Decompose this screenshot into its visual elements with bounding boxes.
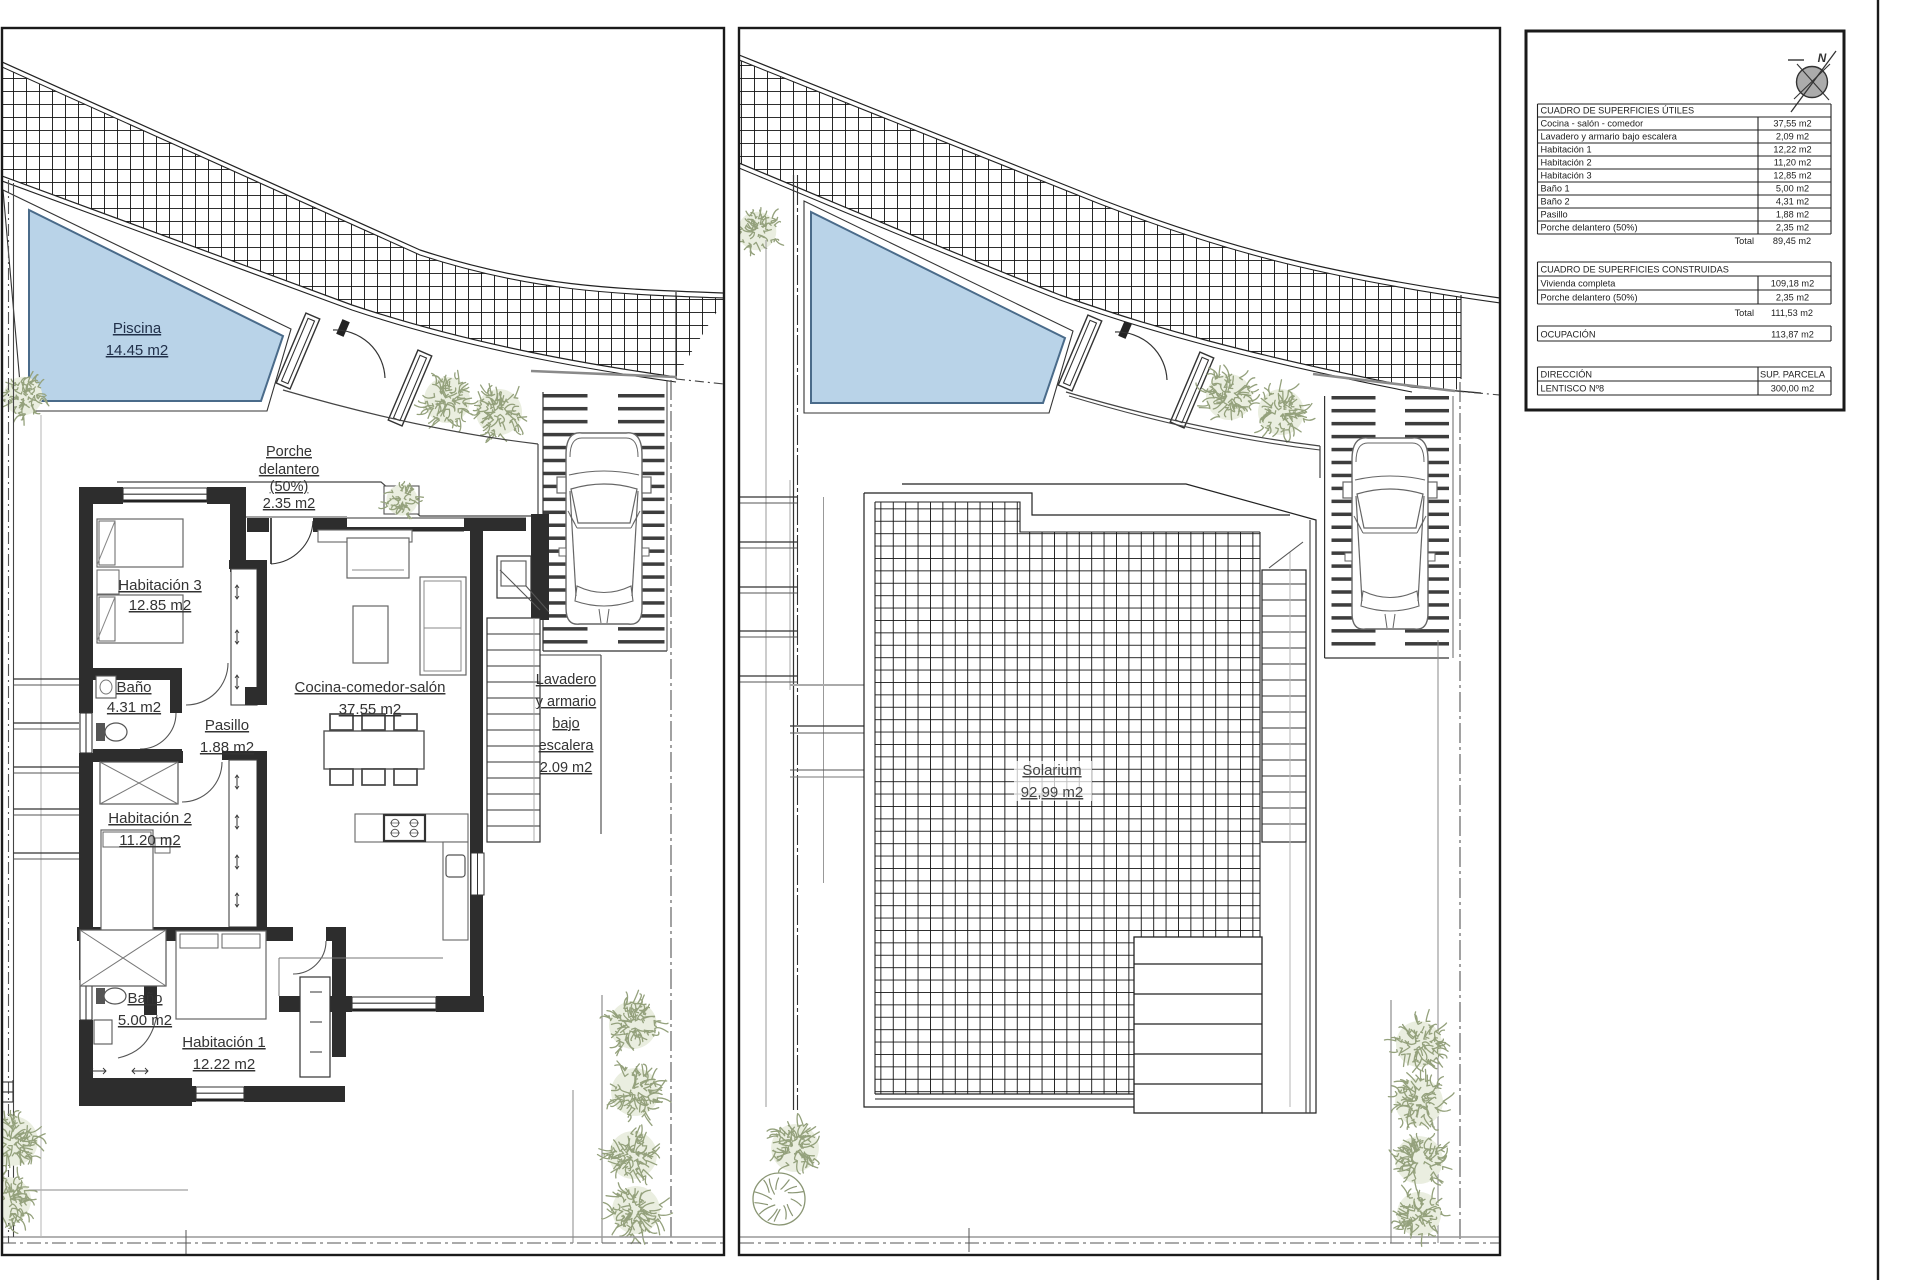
- svg-text:1,88 m2: 1,88 m2: [1776, 210, 1809, 220]
- svg-text:N: N: [1818, 51, 1827, 65]
- svg-text:2.35 m2: 2.35 m2: [263, 496, 315, 512]
- svg-text:37.55 m2: 37.55 m2: [339, 701, 402, 718]
- svg-text:Pasillo: Pasillo: [205, 717, 249, 734]
- svg-text:OCUPACIÓN: OCUPACIÓN: [1541, 330, 1596, 340]
- svg-text:113,87 m2: 113,87 m2: [1771, 330, 1814, 340]
- svg-text:Lavadero: Lavadero: [536, 672, 596, 688]
- svg-text:2.09 m2: 2.09 m2: [540, 760, 592, 776]
- svg-text:y armario: y armario: [536, 694, 596, 710]
- svg-text:12,22 m2: 12,22 m2: [1773, 145, 1811, 155]
- svg-text:300,00 m2: 300,00 m2: [1771, 384, 1814, 394]
- svg-text:DIRECCIÓN: DIRECCIÓN: [1541, 370, 1593, 380]
- svg-text:Pasillo: Pasillo: [1541, 210, 1568, 220]
- svg-text:(50%): (50%): [270, 479, 309, 495]
- svg-text:Baño: Baño: [116, 679, 151, 696]
- svg-text:12,85 m2: 12,85 m2: [1773, 171, 1811, 181]
- svg-text:Baño 2: Baño 2: [1541, 197, 1570, 207]
- svg-text:14.45 m2: 14.45 m2: [106, 342, 169, 359]
- svg-text:11,20 m2: 11,20 m2: [1774, 158, 1812, 168]
- svg-text:Habitación 3: Habitación 3: [118, 577, 201, 594]
- svg-text:2,35 m2: 2,35 m2: [1776, 223, 1809, 233]
- svg-text:Habitación 2: Habitación 2: [108, 810, 191, 827]
- svg-text:92,99 m2: 92,99 m2: [1021, 784, 1084, 801]
- svg-text:1.88 m2: 1.88 m2: [200, 739, 254, 756]
- svg-text:CUADRO DE SUPERFICIES ÚTILES: CUADRO DE SUPERFICIES ÚTILES: [1541, 106, 1695, 116]
- svg-text:2,35 m2: 2,35 m2: [1776, 293, 1809, 303]
- svg-text:Habitación 1: Habitación 1: [182, 1034, 265, 1051]
- svg-text:37,55 m2: 37,55 m2: [1773, 119, 1811, 129]
- svg-text:Habitación 2: Habitación 2: [1541, 158, 1592, 168]
- svg-text:SUP. PARCELA: SUP. PARCELA: [1760, 370, 1826, 380]
- svg-text:5.00 m2: 5.00 m2: [118, 1012, 172, 1029]
- svg-text:4.31 m2: 4.31 m2: [107, 699, 161, 716]
- svg-text:Piscina: Piscina: [113, 320, 162, 337]
- svg-text:11.20 m2: 11.20 m2: [119, 832, 180, 849]
- svg-text:LENTISCO Nº8: LENTISCO Nº8: [1541, 384, 1605, 394]
- svg-text:109,18 m2: 109,18 m2: [1771, 279, 1814, 289]
- svg-text:12.22 m2: 12.22 m2: [193, 1056, 256, 1073]
- svg-text:CUADRO DE SUPERFICIES CONSTRUI: CUADRO DE SUPERFICIES CONSTRUIDAS: [1541, 265, 1729, 275]
- svg-text:Habitación 1: Habitación 1: [1541, 145, 1592, 155]
- svg-text:bajo: bajo: [552, 716, 579, 732]
- svg-text:Habitación 3: Habitación 3: [1541, 171, 1592, 181]
- svg-text:escalera: escalera: [539, 738, 595, 754]
- svg-text:Cocina-comedor-salón: Cocina-comedor-salón: [295, 679, 446, 696]
- svg-text:Porche: Porche: [266, 444, 312, 460]
- svg-text:Cocina - salón - comedor: Cocina - salón - comedor: [1541, 119, 1644, 129]
- svg-text:Porche delantero (50%): Porche delantero (50%): [1541, 223, 1638, 233]
- svg-text:4,31 m2: 4,31 m2: [1776, 197, 1809, 207]
- svg-text:12.85 m2: 12.85 m2: [129, 597, 192, 614]
- svg-text:89,45 m2: 89,45 m2: [1773, 236, 1811, 246]
- svg-text:Solarium: Solarium: [1022, 762, 1081, 779]
- svg-text:Baño 1: Baño 1: [1541, 184, 1570, 194]
- svg-text:2,09 m2: 2,09 m2: [1776, 132, 1809, 142]
- svg-text:Baño: Baño: [127, 990, 162, 1007]
- svg-text:delantero: delantero: [259, 462, 319, 478]
- svg-text:Total: Total: [1735, 308, 1754, 318]
- svg-text:Lavadero y armario bajo escale: Lavadero y armario bajo escalera: [1541, 132, 1678, 142]
- svg-text:Vivienda completa: Vivienda completa: [1541, 279, 1617, 289]
- svg-text:111,53 m2: 111,53 m2: [1771, 308, 1813, 318]
- svg-text:5,00 m2: 5,00 m2: [1776, 184, 1809, 194]
- svg-text:Porche delantero (50%): Porche delantero (50%): [1541, 293, 1638, 303]
- svg-text:Total: Total: [1735, 236, 1754, 246]
